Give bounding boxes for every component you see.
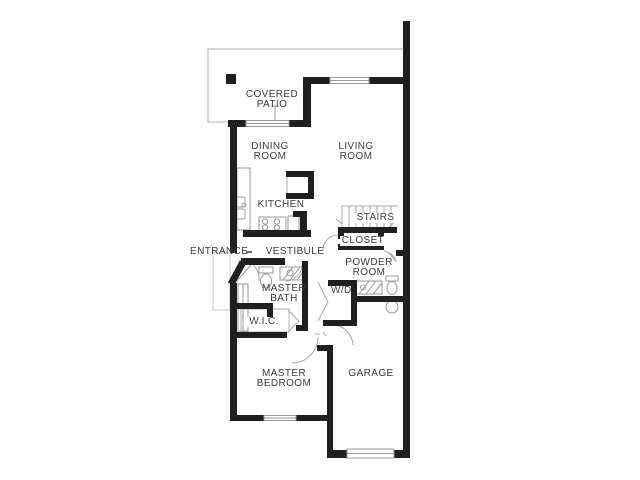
water-heater-icon — [386, 301, 398, 313]
room-label-master-bedroom: MASTER BEDROOM — [242, 369, 326, 389]
closet-door-arc — [323, 235, 338, 250]
kitchen-counter — [237, 168, 250, 230]
wall-garage-south-b — [394, 450, 410, 458]
refrigerator-icon — [288, 216, 299, 231]
room-label-kitchen: KITCHEN — [246, 200, 316, 210]
wd-bifold-doors — [318, 282, 328, 321]
room-label-wd: W/D — [331, 286, 351, 296]
wall-powder-south — [352, 296, 403, 302]
bedroom-window — [264, 416, 296, 421]
room-label-vestibule: VESTIBULE — [265, 247, 325, 257]
front-door-arc — [251, 263, 259, 281]
wall-wd-bottom — [323, 320, 351, 326]
bedroom-door-arc — [292, 337, 318, 363]
wall-bedroom-south-b — [296, 415, 330, 421]
dining-room-window — [246, 121, 289, 127]
room-label-powder-room: POWDER ROOM — [339, 258, 399, 278]
room-label-living-room: LIVING ROOM — [323, 142, 389, 162]
wall-bath-foot — [296, 325, 308, 331]
wall-garage-west — [327, 345, 333, 458]
entrance-leader-dash — [246, 251, 252, 253]
wall-dining-north-b — [289, 120, 311, 127]
living-room-window — [330, 78, 369, 84]
powder-toilet-icon — [386, 276, 398, 295]
floor-plan: COVERED PATIO DINING ROOM LIVING ROOM KI… — [0, 0, 640, 480]
room-label-stairs: STAIRS — [352, 213, 399, 223]
room-label-garage: GARAGE — [341, 369, 401, 379]
entry-walkway — [213, 253, 230, 310]
dimension-ticks — [315, 332, 326, 336]
floor-plan-drawing — [0, 0, 640, 480]
wall-living-north-b — [369, 77, 403, 84]
patio-post — [226, 74, 236, 84]
room-label-entrance: ENTRANCE — [190, 247, 246, 257]
garage-entry-door-arc — [333, 325, 353, 345]
wall-right — [403, 21, 410, 458]
range-burners-icon — [259, 217, 286, 231]
room-label-master-bath: MASTER BATH — [254, 284, 314, 304]
room-label-wic: W.I.C. — [245, 317, 283, 327]
wall-living-north-a — [311, 77, 330, 84]
wall-garage-south-a — [327, 450, 347, 458]
room-label-closet: CLOSET — [340, 236, 386, 246]
wall-wic-bottom — [230, 332, 287, 338]
wall-bath-north — [241, 258, 285, 265]
room-label-dining-room: DINING ROOM — [237, 142, 303, 162]
garage-door — [347, 449, 394, 458]
room-label-covered-patio: COVERED PATIO — [237, 90, 307, 110]
wall-bedroom-south-a — [230, 415, 264, 421]
wall-fridge-stub-h — [293, 211, 307, 217]
wall-closet-top — [338, 227, 397, 233]
wall-left-upper — [230, 120, 237, 253]
wall-powder-tick — [396, 250, 403, 256]
wall-wd-right — [351, 280, 357, 326]
powder-vanity — [356, 281, 382, 294]
